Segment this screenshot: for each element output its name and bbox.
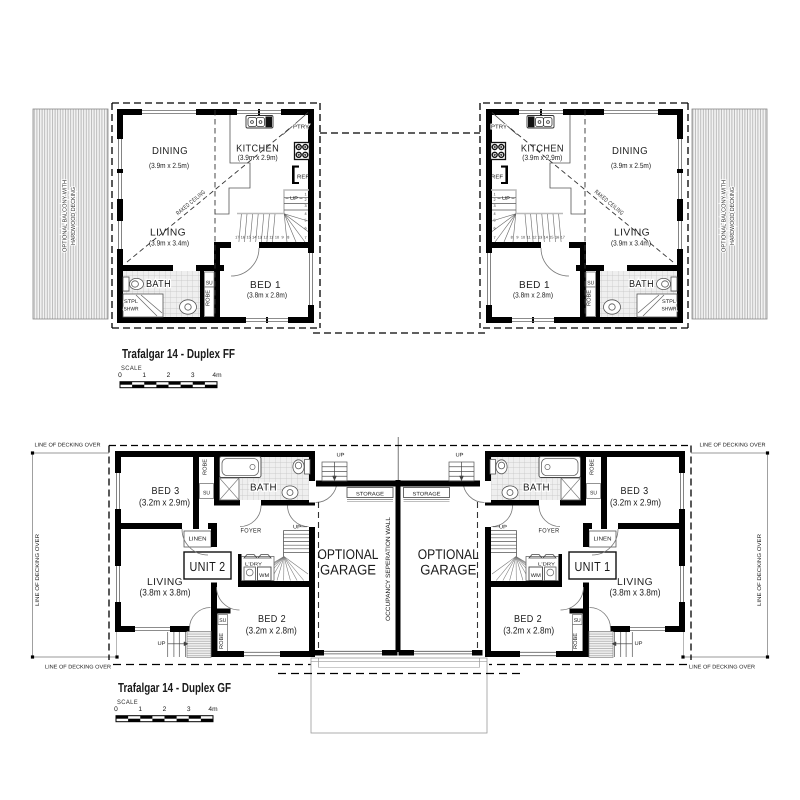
svg-text:3: 3 bbox=[187, 706, 191, 713]
svg-text:ROBE: ROBE bbox=[573, 633, 579, 649]
svg-text:LIVING: LIVING bbox=[617, 577, 653, 588]
svg-text:(3.9m x 2.9m): (3.9m x 2.9m) bbox=[522, 153, 562, 162]
svg-text:BED 3: BED 3 bbox=[621, 486, 649, 497]
svg-text:14: 14 bbox=[252, 236, 256, 240]
svg-text:BED 1: BED 1 bbox=[250, 280, 281, 291]
svg-text:ROBE: ROBE bbox=[219, 633, 225, 649]
svg-text:(3.8m x 2.8m): (3.8m x 2.8m) bbox=[513, 291, 553, 300]
svg-text:15: 15 bbox=[549, 236, 553, 240]
svg-text:UNIT 1: UNIT 1 bbox=[575, 559, 611, 574]
svg-text:(3.8m x 3.8m): (3.8m x 3.8m) bbox=[610, 588, 661, 599]
svg-text:11: 11 bbox=[527, 236, 531, 240]
svg-text:UP: UP bbox=[158, 641, 167, 647]
svg-text:REF: REF bbox=[297, 175, 310, 181]
svg-text:0: 0 bbox=[118, 372, 122, 379]
svg-text:UP: UP bbox=[502, 196, 511, 202]
svg-text:1: 1 bbox=[304, 192, 306, 196]
svg-text:2: 2 bbox=[163, 706, 167, 713]
svg-text:SHWR: SHWR bbox=[124, 307, 139, 313]
svg-text:WM: WM bbox=[531, 573, 541, 579]
svg-text:OPTIONAL BALCONY WITH: OPTIONAL BALCONY WITH bbox=[721, 180, 728, 252]
svg-text:10: 10 bbox=[275, 236, 279, 240]
svg-text:LIVING: LIVING bbox=[147, 577, 183, 588]
svg-text:9: 9 bbox=[516, 236, 518, 240]
svg-text:LINE OF DECKING OVER: LINE OF DECKING OVER bbox=[757, 534, 763, 606]
svg-text:13: 13 bbox=[538, 236, 542, 240]
svg-text:12: 12 bbox=[532, 236, 536, 240]
svg-text:GARAGE: GARAGE bbox=[420, 562, 476, 578]
svg-text:UP: UP bbox=[635, 641, 644, 647]
svg-text:OPTIONAL: OPTIONAL bbox=[318, 546, 379, 562]
svg-text:UP: UP bbox=[290, 196, 299, 202]
svg-text:BED 2: BED 2 bbox=[514, 614, 542, 625]
svg-text:17: 17 bbox=[561, 236, 565, 240]
svg-text:UNIT 2: UNIT 2 bbox=[190, 559, 226, 574]
svg-text:ROBE: ROBE bbox=[587, 290, 593, 306]
svg-text:2: 2 bbox=[304, 198, 306, 202]
svg-text:STPL: STPL bbox=[124, 299, 138, 305]
svg-text:4m: 4m bbox=[212, 372, 222, 379]
svg-text:LIVING: LIVING bbox=[150, 228, 186, 239]
svg-text:16: 16 bbox=[555, 236, 559, 240]
svg-text:3: 3 bbox=[191, 372, 195, 379]
svg-text:3: 3 bbox=[304, 204, 306, 208]
svg-text:(3.9m x 2.5m): (3.9m x 2.5m) bbox=[149, 161, 189, 170]
svg-text:PTRY: PTRY bbox=[491, 125, 507, 131]
svg-text:BED 2: BED 2 bbox=[258, 614, 286, 625]
svg-text:BATH: BATH bbox=[146, 279, 171, 290]
svg-text:2: 2 bbox=[493, 198, 495, 202]
svg-text:10: 10 bbox=[521, 236, 525, 240]
svg-text:(3.8m x 2.8m): (3.8m x 2.8m) bbox=[247, 291, 287, 300]
svg-text:FOYER: FOYER bbox=[241, 528, 262, 535]
svg-text:8: 8 bbox=[511, 236, 513, 240]
svg-text:8: 8 bbox=[287, 236, 289, 240]
svg-text:13: 13 bbox=[258, 236, 262, 240]
svg-text:12: 12 bbox=[263, 236, 267, 240]
svg-text:(3.2m x 2.9m): (3.2m x 2.9m) bbox=[139, 498, 190, 509]
svg-text:6: 6 bbox=[493, 226, 495, 230]
svg-text:LINEN: LINEN bbox=[189, 537, 207, 543]
svg-text:LINE OF DECKING OVER: LINE OF DECKING OVER bbox=[45, 665, 111, 671]
svg-text:UP: UP bbox=[456, 453, 465, 459]
svg-text:(3.8m x 3.8m): (3.8m x 3.8m) bbox=[140, 588, 191, 599]
svg-text:7: 7 bbox=[304, 236, 306, 240]
svg-text:SU: SU bbox=[203, 491, 210, 497]
svg-text:(3.2m x 2.8m): (3.2m x 2.8m) bbox=[503, 626, 554, 637]
svg-text:SU: SU bbox=[219, 618, 226, 624]
svg-text:HARDWOOD DECKING: HARDWOOD DECKING bbox=[729, 187, 736, 245]
svg-text:WM: WM bbox=[259, 573, 269, 579]
svg-text:15: 15 bbox=[246, 236, 250, 240]
svg-text:4: 4 bbox=[304, 212, 306, 216]
svg-text:BED 1: BED 1 bbox=[519, 280, 550, 291]
svg-text:OPTIONAL BALCONY WITH: OPTIONAL BALCONY WITH bbox=[62, 180, 69, 252]
svg-text:1: 1 bbox=[142, 372, 146, 379]
svg-text:1: 1 bbox=[138, 706, 142, 713]
svg-text:ROBE: ROBE bbox=[203, 459, 209, 475]
svg-text:BATH: BATH bbox=[250, 483, 277, 494]
svg-text:0: 0 bbox=[114, 706, 118, 713]
svg-text:5: 5 bbox=[304, 219, 306, 223]
svg-text:FOYER: FOYER bbox=[539, 528, 560, 535]
svg-text:7: 7 bbox=[493, 236, 495, 240]
svg-text:(3.9m x 3.4m): (3.9m x 3.4m) bbox=[611, 239, 651, 248]
svg-text:OCCUPANCY SEPERATION WALL: OCCUPANCY SEPERATION WALL bbox=[385, 516, 392, 621]
svg-text:DINING: DINING bbox=[152, 146, 188, 157]
svg-text:6: 6 bbox=[304, 226, 306, 230]
svg-text:LINE OF DECKING OVER: LINE OF DECKING OVER bbox=[35, 534, 41, 606]
svg-text:5: 5 bbox=[493, 219, 495, 223]
svg-text:UP: UP bbox=[499, 525, 508, 531]
svg-text:LIVING: LIVING bbox=[614, 228, 650, 239]
svg-text:16: 16 bbox=[241, 236, 245, 240]
svg-text:SU: SU bbox=[206, 281, 213, 287]
svg-text:HARDWOOD DECKING: HARDWOOD DECKING bbox=[70, 187, 77, 245]
svg-text:11: 11 bbox=[269, 236, 273, 240]
svg-text:LINE OF DECKING OVER: LINE OF DECKING OVER bbox=[700, 443, 766, 449]
svg-text:LINE OF DECKING OVER: LINE OF DECKING OVER bbox=[689, 665, 755, 671]
svg-text:4: 4 bbox=[493, 212, 495, 216]
svg-text:(3.9m x 3.4m): (3.9m x 3.4m) bbox=[149, 239, 189, 248]
svg-text:REF: REF bbox=[491, 175, 504, 181]
svg-text:ROBE: ROBE bbox=[206, 290, 212, 306]
svg-text:2: 2 bbox=[167, 372, 171, 379]
svg-text:SCALE: SCALE bbox=[117, 699, 138, 706]
svg-text:3: 3 bbox=[493, 204, 495, 208]
svg-text:STPL: STPL bbox=[662, 299, 676, 305]
svg-text:4m: 4m bbox=[208, 706, 218, 713]
svg-text:(3.2m x 2.9m): (3.2m x 2.9m) bbox=[610, 498, 661, 509]
svg-text:17: 17 bbox=[235, 236, 239, 240]
svg-text:OPTIONAL: OPTIONAL bbox=[418, 546, 479, 562]
svg-text:PTRY: PTRY bbox=[293, 125, 309, 131]
svg-text:9: 9 bbox=[282, 236, 284, 240]
svg-text:UP: UP bbox=[293, 525, 302, 531]
svg-text:SU: SU bbox=[587, 281, 594, 287]
svg-text:DINING: DINING bbox=[612, 146, 648, 157]
svg-text:L'DRY: L'DRY bbox=[245, 562, 262, 567]
svg-text:(3.9m x 2.5m): (3.9m x 2.5m) bbox=[611, 161, 651, 170]
svg-text:ROBE: ROBE bbox=[590, 459, 596, 475]
svg-text:1: 1 bbox=[493, 192, 495, 196]
svg-text:UP: UP bbox=[337, 453, 346, 459]
svg-text:SCALE: SCALE bbox=[121, 365, 142, 372]
svg-text:LINEN: LINEN bbox=[594, 537, 612, 543]
svg-text:STORAGE: STORAGE bbox=[413, 491, 442, 497]
svg-text:BATH: BATH bbox=[523, 483, 550, 494]
svg-text:Trafalgar 14 - Duplex FF: Trafalgar 14 - Duplex FF bbox=[122, 346, 235, 361]
svg-text:SU: SU bbox=[574, 618, 581, 624]
svg-text:BATH: BATH bbox=[629, 279, 654, 290]
svg-text:GARAGE: GARAGE bbox=[320, 562, 376, 578]
svg-text:SU: SU bbox=[590, 491, 597, 497]
svg-text:SHWR: SHWR bbox=[662, 307, 677, 313]
svg-text:L'DRY: L'DRY bbox=[538, 562, 555, 567]
svg-text:STORAGE: STORAGE bbox=[356, 491, 385, 497]
svg-text:(3.9m x 2.9m): (3.9m x 2.9m) bbox=[238, 153, 278, 162]
svg-text:14: 14 bbox=[544, 236, 548, 240]
svg-text:(3.2m x 2.8m): (3.2m x 2.8m) bbox=[246, 626, 297, 637]
svg-text:Trafalgar 14 - Duplex GF: Trafalgar 14 - Duplex GF bbox=[118, 680, 231, 695]
svg-text:LINE OF DECKING OVER: LINE OF DECKING OVER bbox=[35, 443, 101, 449]
svg-text:BED 3: BED 3 bbox=[152, 486, 180, 497]
